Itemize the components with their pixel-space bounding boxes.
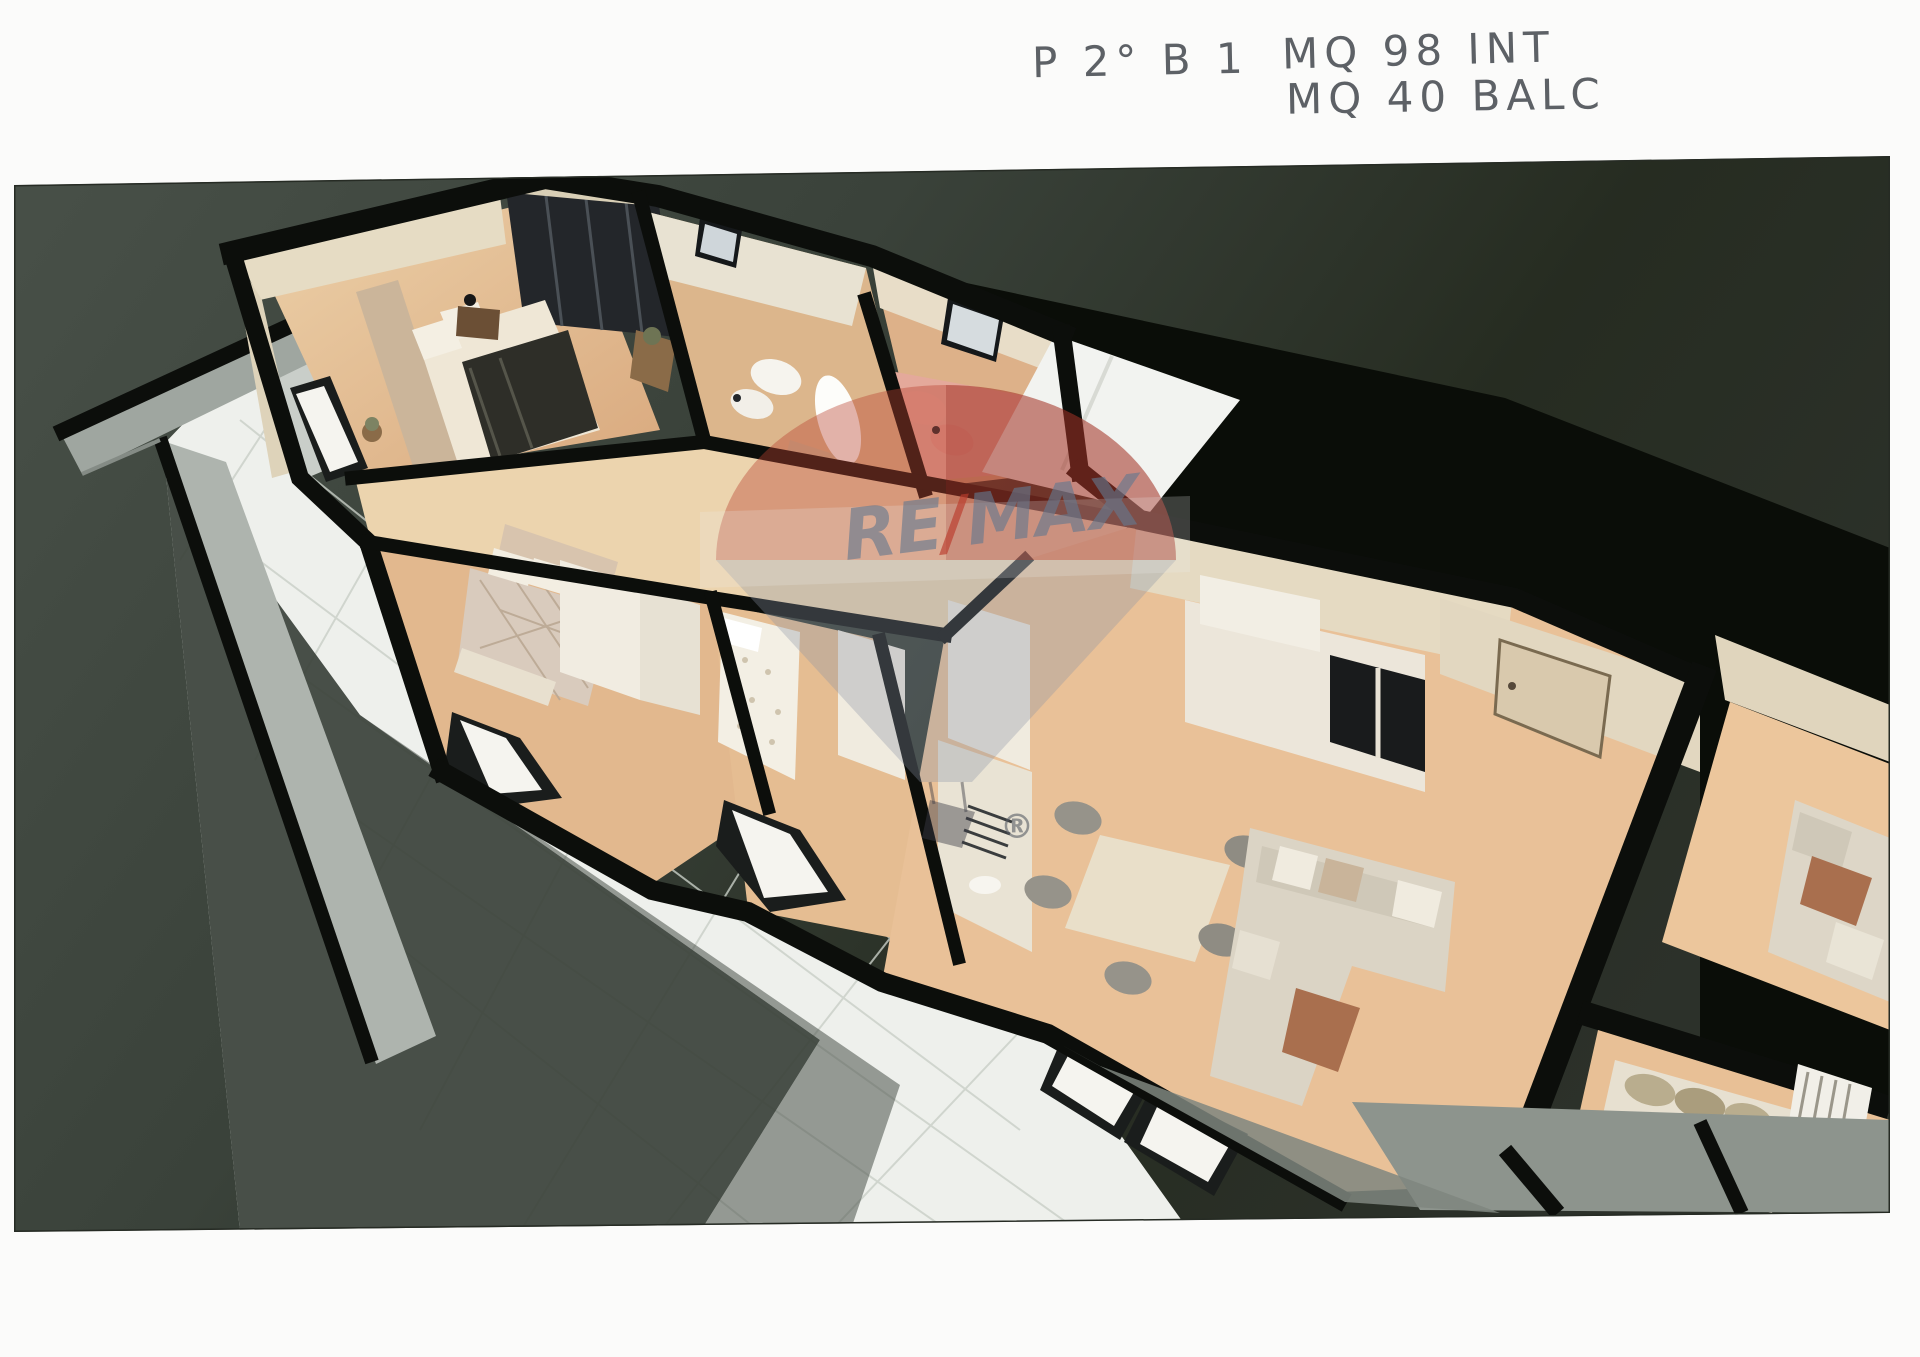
nightstand: [456, 306, 500, 340]
scanned-page: P 2° B 1 MQ 98 INT MQ 40 BALC: [0, 0, 1920, 1357]
floorplan-render: RE/MAX ®: [0, 0, 1920, 1357]
registered-mark: ®: [1000, 807, 1034, 847]
